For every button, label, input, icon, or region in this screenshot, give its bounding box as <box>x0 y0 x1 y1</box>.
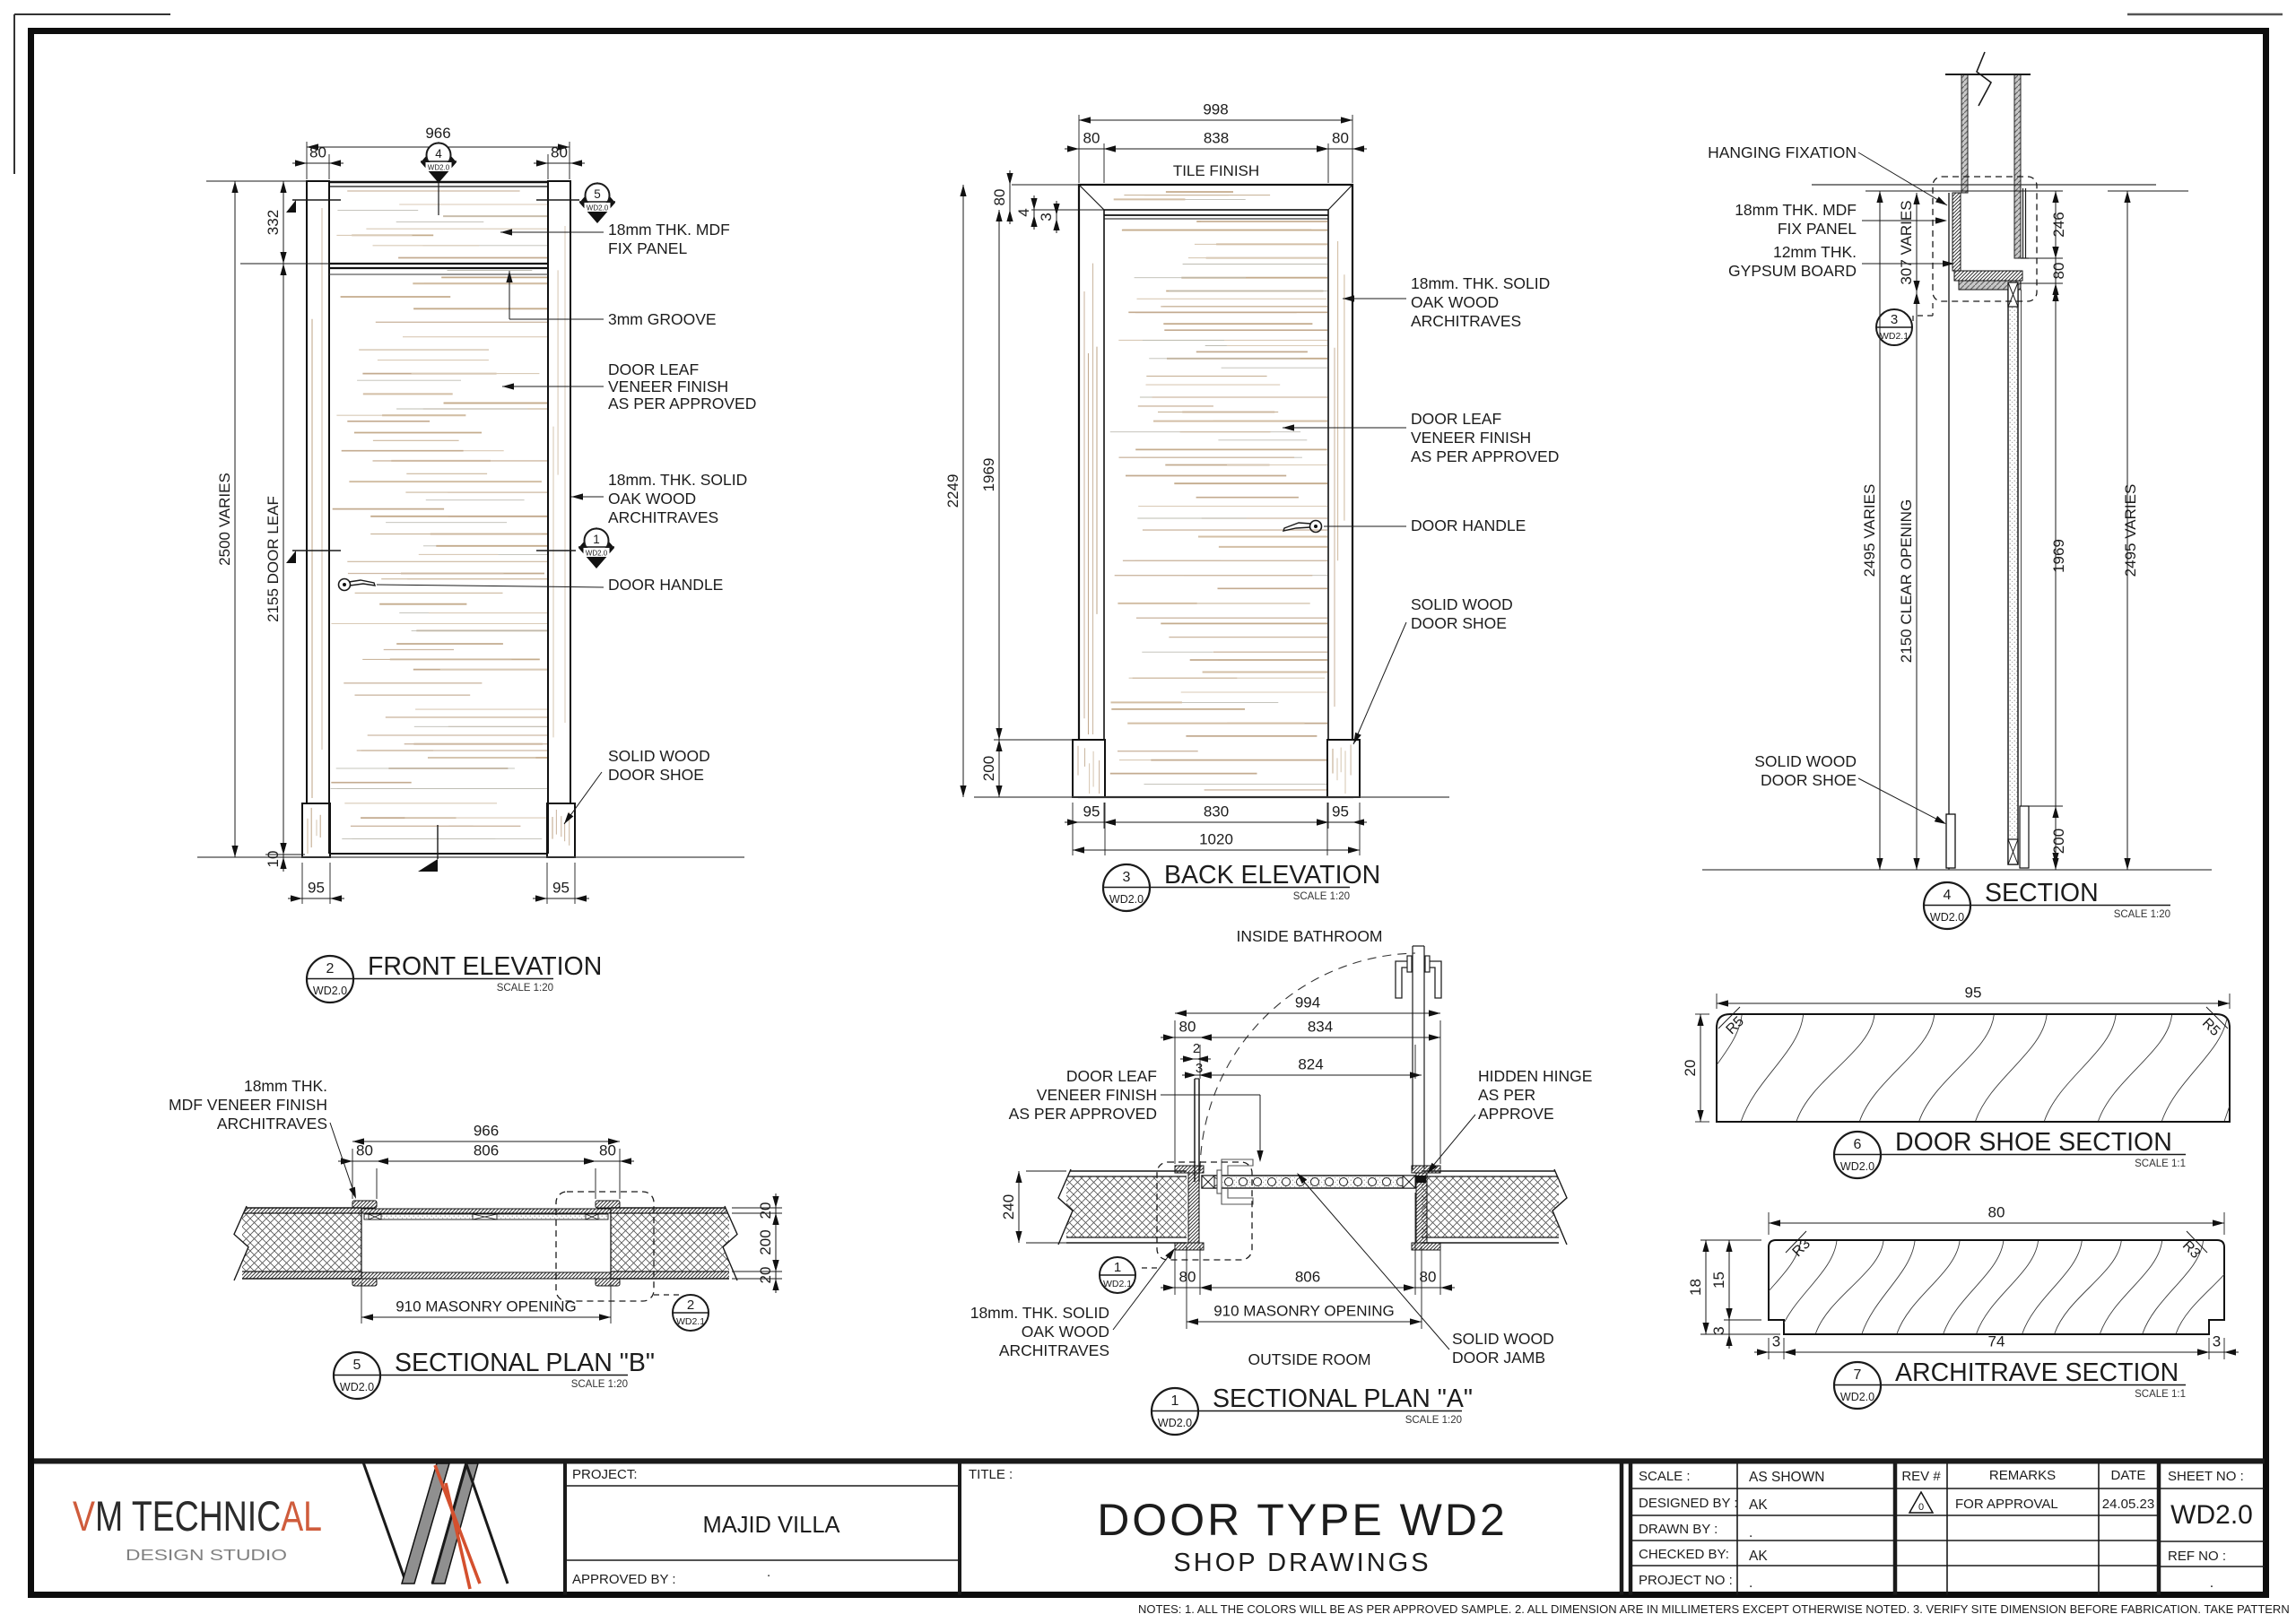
svg-text:5: 5 <box>594 187 601 201</box>
svg-text:WD2.0: WD2.0 <box>1158 1417 1192 1429</box>
svg-text:SCALE 1:20: SCALE 1:20 <box>1405 1415 1462 1426</box>
svg-text:20: 20 <box>1682 1060 1699 1077</box>
svg-text:SCALE :: SCALE : <box>1639 1469 1691 1484</box>
svg-text:AS PER: AS PER <box>1478 1086 1535 1104</box>
svg-text:SCALE 1:20: SCALE 1:20 <box>1293 891 1350 902</box>
svg-text:2: 2 <box>326 961 335 976</box>
svg-text:200: 200 <box>2050 829 2067 854</box>
svg-text:DOOR HANDLE: DOOR HANDLE <box>1411 516 1526 534</box>
svg-text:95: 95 <box>1965 985 1982 1002</box>
svg-text:DOOR LEAF: DOOR LEAF <box>608 360 699 378</box>
svg-text:APPROVED BY :: APPROVED BY : <box>572 1572 676 1587</box>
svg-text:DOOR SHOE: DOOR SHOE <box>1761 771 1857 789</box>
svg-text:80: 80 <box>599 1142 616 1159</box>
svg-text:1: 1 <box>593 533 600 546</box>
svg-text:SECTION: SECTION <box>1985 879 2099 907</box>
svg-text:2495 VARIES: 2495 VARIES <box>1861 484 1878 577</box>
svg-text:AK: AK <box>1749 1497 1768 1513</box>
svg-text:240: 240 <box>1000 1194 1017 1219</box>
svg-text:1: 1 <box>1171 1393 1179 1409</box>
svg-text:95: 95 <box>552 880 570 897</box>
svg-text:7: 7 <box>1854 1367 1862 1383</box>
svg-text:SECTIONAL PLAN "B": SECTIONAL PLAN "B" <box>395 1349 655 1377</box>
svg-text:DESIGNED BY :: DESIGNED BY : <box>1639 1496 1738 1511</box>
svg-text:PROJECT:: PROJECT: <box>572 1467 638 1482</box>
svg-text:REF NO :: REF NO : <box>2168 1549 2226 1564</box>
svg-text:ARCHITRAVES: ARCHITRAVES <box>608 508 718 526</box>
svg-text:ARCHITRAVES: ARCHITRAVES <box>1411 312 1521 330</box>
svg-text:18mm. THK. SOLID: 18mm. THK. SOLID <box>970 1304 1109 1322</box>
svg-text:REMARKS: REMARKS <box>1989 1468 2056 1483</box>
svg-text:80: 80 <box>1179 1269 1196 1286</box>
svg-text:966: 966 <box>425 125 450 142</box>
svg-text:12mm THK.: 12mm THK. <box>1773 243 1857 261</box>
svg-text:FIX PANEL: FIX PANEL <box>1778 220 1857 238</box>
svg-text:WD2.0: WD2.0 <box>2170 1500 2253 1530</box>
svg-text:SCALE 1:20: SCALE 1:20 <box>497 983 553 994</box>
svg-text:200: 200 <box>757 1229 774 1254</box>
svg-text:24.05.23: 24.05.23 <box>2102 1497 2154 1512</box>
svg-text:VENEER FINISH: VENEER FINISH <box>1411 429 1531 447</box>
svg-text:80: 80 <box>2050 263 2067 280</box>
svg-text:FRONT ELEVATION: FRONT ELEVATION <box>368 952 602 981</box>
svg-text:AK: AK <box>1749 1549 1768 1564</box>
svg-text:3: 3 <box>1038 213 1055 221</box>
svg-text:332: 332 <box>265 210 282 235</box>
svg-text:NOTES: 1. ALL THE COLORS WILL: NOTES: 1. ALL THE COLORS WILL BE AS PER … <box>1138 1602 2290 1616</box>
svg-text:DRAWN BY :: DRAWN BY : <box>1639 1522 1718 1537</box>
svg-text:806: 806 <box>1295 1269 1320 1286</box>
svg-text:830: 830 <box>1204 803 1229 820</box>
svg-text:AS SHOWN: AS SHOWN <box>1749 1470 1824 1485</box>
svg-text:20: 20 <box>757 1202 774 1219</box>
svg-text:WD2.0: WD2.0 <box>1840 1160 1874 1173</box>
svg-text:GYPSUM BOARD: GYPSUM BOARD <box>1728 262 1857 280</box>
svg-text:TITLE :: TITLE : <box>969 1467 1013 1482</box>
svg-text:DESIGN STUDIO: DESIGN STUDIO <box>126 1546 287 1564</box>
svg-text:DOOR SHOE: DOOR SHOE <box>1411 614 1507 632</box>
svg-text:FOR APPROVAL: FOR APPROVAL <box>1955 1497 2058 1512</box>
svg-text:80: 80 <box>1420 1269 1437 1286</box>
svg-text:DOOR SHOE: DOOR SHOE <box>608 766 704 784</box>
svg-text:AS PER APPROVED: AS PER APPROVED <box>608 395 756 412</box>
svg-text:910 MASONRY OPENING: 910 MASONRY OPENING <box>396 1298 577 1315</box>
svg-text:INSIDE BATHROOM: INSIDE BATHROOM <box>1236 927 1382 945</box>
svg-text:HANGING FIXATION: HANGING FIXATION <box>1708 143 1857 161</box>
svg-text:DOOR HANDLE: DOOR HANDLE <box>608 576 723 594</box>
svg-text:TILE FINISH: TILE FINISH <box>1173 162 1259 179</box>
svg-text:80: 80 <box>1988 1204 2005 1221</box>
svg-text:SOLID WOOD: SOLID WOOD <box>1754 752 1857 770</box>
svg-text:3mm GROOVE: 3mm GROOVE <box>608 310 717 328</box>
svg-text:3: 3 <box>2213 1333 2221 1350</box>
svg-text:AS PER APPROVED: AS PER APPROVED <box>1009 1105 1157 1123</box>
svg-text:10: 10 <box>265 851 282 868</box>
svg-text:1: 1 <box>1114 1260 1121 1275</box>
svg-text:95: 95 <box>1332 803 1349 820</box>
svg-text:OUTSIDE ROOM: OUTSIDE ROOM <box>1248 1350 1370 1368</box>
svg-text:15: 15 <box>1710 1271 1727 1289</box>
svg-text:18mm. THK. SOLID: 18mm. THK. SOLID <box>1411 274 1550 292</box>
svg-text:VENEER FINISH: VENEER FINISH <box>608 378 728 395</box>
svg-text:ARCHITRAVES: ARCHITRAVES <box>217 1115 327 1133</box>
svg-text:1020: 1020 <box>1199 831 1233 848</box>
svg-text:MDF VENEER FINISH: MDF VENEER FINISH <box>169 1096 327 1114</box>
svg-text:2500 VARIES: 2500 VARIES <box>216 473 233 566</box>
svg-text:200: 200 <box>980 756 997 781</box>
svg-text:DOOR LEAF: DOOR LEAF <box>1411 410 1501 428</box>
svg-text:DOOR SHOE SECTION: DOOR SHOE SECTION <box>1895 1128 2172 1157</box>
svg-text:BACK ELEVATION: BACK ELEVATION <box>1164 861 1380 890</box>
svg-text:18mm THK.: 18mm THK. <box>244 1077 327 1095</box>
svg-text:OAK WOOD: OAK WOOD <box>1411 293 1499 311</box>
svg-text:910 MASONRY OPENING: 910 MASONRY OPENING <box>1213 1303 1395 1320</box>
svg-text:OAK WOOD: OAK WOOD <box>1022 1323 1109 1341</box>
svg-text:SOLID WOOD: SOLID WOOD <box>1411 595 1513 613</box>
svg-text:80: 80 <box>991 189 1008 206</box>
svg-text:1969: 1969 <box>2050 539 2067 573</box>
svg-text:3: 3 <box>1196 1061 1203 1076</box>
svg-text:95: 95 <box>1083 803 1100 820</box>
svg-text:966: 966 <box>474 1123 499 1140</box>
svg-text:998: 998 <box>1203 101 1228 118</box>
svg-text:.: . <box>2210 1575 2213 1591</box>
svg-text:2: 2 <box>687 1298 694 1313</box>
svg-text:18mm THK. MDF: 18mm THK. MDF <box>1735 201 1857 219</box>
svg-text:838: 838 <box>1204 130 1229 147</box>
svg-text:824: 824 <box>1298 1056 1323 1073</box>
svg-text:74: 74 <box>1988 1333 2005 1350</box>
svg-text:.: . <box>767 1565 770 1580</box>
svg-text:80: 80 <box>309 144 326 161</box>
svg-text:2155 DOOR LEAF: 2155 DOOR LEAF <box>265 496 282 622</box>
svg-text:SCALE 1:20: SCALE 1:20 <box>2114 909 2170 920</box>
svg-text:PROJECT NO :: PROJECT NO : <box>1639 1573 1733 1588</box>
svg-text:18mm. THK. SOLID: 18mm. THK. SOLID <box>608 471 747 489</box>
svg-text:834: 834 <box>1308 1019 1333 1036</box>
svg-text:SOLID WOOD: SOLID WOOD <box>608 747 710 765</box>
svg-text:HIDDEN HINGE: HIDDEN HINGE <box>1478 1067 1592 1085</box>
svg-text:SCALE 1:1: SCALE 1:1 <box>2135 1159 2186 1169</box>
svg-text:ARCHITRAVES: ARCHITRAVES <box>999 1341 1109 1359</box>
svg-text:6: 6 <box>1854 1137 1862 1152</box>
svg-text:246: 246 <box>2050 212 2067 237</box>
svg-text:ARCHITRAVE SECTION: ARCHITRAVE SECTION <box>1895 1358 2179 1387</box>
svg-text:WD2.0: WD2.0 <box>1109 893 1144 906</box>
svg-text:WD2.0: WD2.0 <box>1840 1391 1874 1403</box>
svg-text:WD2.0: WD2.0 <box>587 204 609 213</box>
svg-text:5: 5 <box>353 1358 361 1373</box>
svg-text:3: 3 <box>1710 1326 1727 1334</box>
svg-text:4: 4 <box>1015 208 1032 216</box>
svg-text:WD2.0: WD2.0 <box>428 164 450 172</box>
svg-text:WD2.1: WD2.1 <box>1103 1279 1132 1289</box>
svg-text:VM TECHNICAL: VM TECHNICAL <box>73 1492 322 1540</box>
svg-text:FIX PANEL: FIX PANEL <box>608 239 687 257</box>
svg-text:VENEER FINISH: VENEER FINISH <box>1037 1086 1157 1104</box>
svg-text:MAJID VILLA: MAJID VILLA <box>702 1513 839 1538</box>
svg-text:18: 18 <box>1687 1279 1704 1296</box>
svg-text:DATE: DATE <box>2111 1468 2146 1483</box>
svg-text:80: 80 <box>1083 130 1100 147</box>
svg-text:806: 806 <box>474 1142 499 1159</box>
svg-text:WD2.0: WD2.0 <box>313 985 347 997</box>
svg-text:2495 VARIES: 2495 VARIES <box>2122 484 2139 577</box>
svg-text:994: 994 <box>1295 994 1320 1011</box>
svg-text:0: 0 <box>1918 1502 1924 1513</box>
svg-text:20: 20 <box>757 1267 774 1284</box>
svg-text:2249: 2249 <box>944 474 961 508</box>
svg-text:3: 3 <box>1123 870 1131 885</box>
svg-text:WD2.1: WD2.1 <box>1880 331 1909 342</box>
svg-text:95: 95 <box>308 880 325 897</box>
svg-text:WD2.0: WD2.0 <box>1930 911 1964 924</box>
svg-text:APPROVE: APPROVE <box>1478 1105 1554 1123</box>
svg-text:SECTIONAL PLAN "A": SECTIONAL PLAN "A" <box>1213 1384 1473 1413</box>
svg-text:80: 80 <box>1179 1019 1196 1036</box>
svg-text:2150 CLEAR OPENING: 2150 CLEAR OPENING <box>1898 499 1915 663</box>
svg-text:3: 3 <box>1891 312 1898 327</box>
svg-text:WD2.0: WD2.0 <box>340 1381 374 1393</box>
svg-text:DOOR LEAF: DOOR LEAF <box>1066 1067 1157 1085</box>
svg-text:18mm THK. MDF: 18mm THK. MDF <box>608 221 730 239</box>
svg-text:4: 4 <box>1944 888 1952 903</box>
svg-text:SHOP DRAWINGS: SHOP DRAWINGS <box>1173 1549 1431 1577</box>
svg-text:SCALE 1:20: SCALE 1:20 <box>571 1379 628 1390</box>
svg-text:WD2.1: WD2.1 <box>676 1316 705 1327</box>
svg-text:80: 80 <box>1332 130 1349 147</box>
svg-text:4: 4 <box>435 147 442 161</box>
svg-text:1969: 1969 <box>980 458 997 492</box>
svg-text:2: 2 <box>1193 1041 1200 1056</box>
svg-text:307 VARIES: 307 VARIES <box>1898 200 1915 284</box>
svg-text:80: 80 <box>356 1142 373 1159</box>
svg-text:.: . <box>1749 1575 1752 1591</box>
svg-text:SOLID WOOD: SOLID WOOD <box>1452 1330 1554 1348</box>
svg-text:DOOR JAMB: DOOR JAMB <box>1452 1349 1545 1367</box>
svg-text:AS PER APPROVED: AS PER APPROVED <box>1411 447 1559 465</box>
svg-text:OAK WOOD: OAK WOOD <box>608 490 696 508</box>
svg-text:DOOR TYPE WD2: DOOR TYPE WD2 <box>1097 1495 1508 1545</box>
svg-text:SHEET NO :: SHEET NO : <box>2168 1469 2244 1484</box>
svg-text:.: . <box>1749 1525 1752 1541</box>
svg-text:REV #: REV # <box>1901 1469 1941 1484</box>
svg-text:CHECKED BY:: CHECKED BY: <box>1639 1547 1729 1562</box>
svg-text:SCALE 1:1: SCALE 1:1 <box>2135 1389 2186 1400</box>
svg-text:WD2.0: WD2.0 <box>586 550 608 558</box>
svg-text:80: 80 <box>551 144 568 161</box>
svg-text:3: 3 <box>1772 1333 1780 1350</box>
